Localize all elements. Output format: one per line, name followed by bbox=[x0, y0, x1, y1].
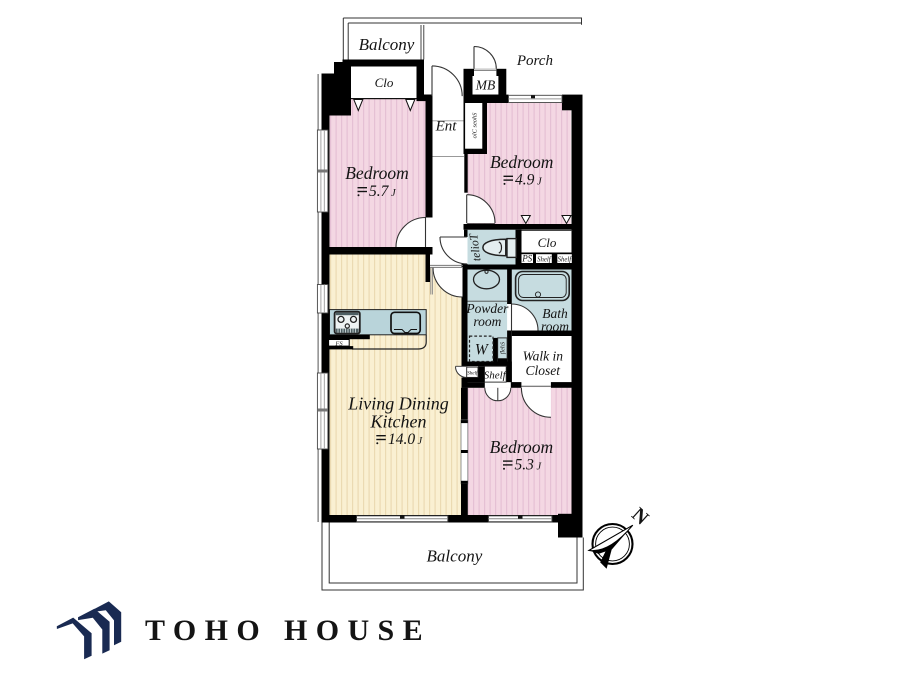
svg-text:Balcony: Balcony bbox=[359, 35, 415, 54]
svg-text:Living Dining: Living Dining bbox=[347, 394, 449, 414]
svg-text:PS: PS bbox=[521, 254, 532, 264]
svg-text:TOHO HOUSE: TOHO HOUSE bbox=[145, 614, 431, 647]
svg-text:Clo: Clo bbox=[538, 235, 557, 250]
svg-text:Bedroom: Bedroom bbox=[490, 437, 554, 457]
svg-text:Shelf: Shelf bbox=[558, 256, 573, 263]
svg-text:14.0: 14.0 bbox=[388, 431, 415, 448]
svg-text:FS: FS bbox=[334, 340, 343, 347]
svg-text:Bedroom: Bedroom bbox=[345, 163, 409, 183]
svg-text:flehS: flehS bbox=[500, 342, 507, 354]
svg-text:MB: MB bbox=[475, 78, 496, 93]
svg-text:4.9: 4.9 bbox=[515, 172, 535, 189]
svg-text:W: W bbox=[475, 342, 490, 359]
svg-text:olC seohS: olC seohS bbox=[471, 112, 478, 139]
svg-text:room: room bbox=[541, 319, 569, 334]
svg-text:5.3: 5.3 bbox=[515, 456, 535, 473]
svg-text:Ent: Ent bbox=[435, 119, 458, 135]
svg-text:Kitchen: Kitchen bbox=[370, 412, 427, 432]
svg-text:Shelf: Shelf bbox=[537, 256, 552, 263]
svg-text:Porch: Porch bbox=[516, 53, 553, 69]
svg-text:Bedroom: Bedroom bbox=[490, 152, 554, 172]
svg-text:Walk in: Walk in bbox=[523, 349, 564, 364]
svg-text:5.7: 5.7 bbox=[369, 183, 390, 200]
svg-text:Shelf: Shelf bbox=[467, 370, 479, 377]
svg-text:Balcony: Balcony bbox=[427, 546, 483, 565]
svg-text:Closet: Closet bbox=[526, 363, 562, 378]
svg-text:Shelf: Shelf bbox=[484, 369, 508, 381]
svg-text:Clo: Clo bbox=[375, 75, 394, 90]
svg-text:room: room bbox=[473, 314, 501, 329]
